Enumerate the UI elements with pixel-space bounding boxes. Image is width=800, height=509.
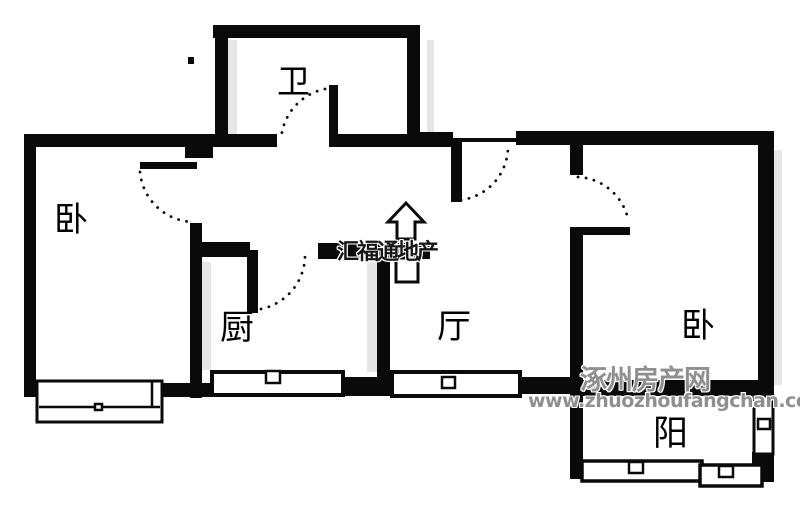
wall bbox=[516, 131, 774, 145]
wall bbox=[215, 25, 228, 147]
entrance-arrow-icon bbox=[388, 203, 424, 239]
wall bbox=[453, 138, 517, 142]
wall-shadow bbox=[367, 262, 377, 372]
watermark-agency-name: 汇福通地产 bbox=[337, 242, 437, 264]
room-label-bedroom-left: 卧 bbox=[54, 203, 88, 237]
door-leaf bbox=[572, 227, 630, 235]
wall bbox=[162, 383, 212, 397]
window-marker bbox=[95, 404, 102, 410]
room-label-living-room: 厅 bbox=[437, 310, 471, 344]
wall bbox=[213, 134, 277, 147]
wall-shadow bbox=[202, 262, 211, 370]
room-label-balcony: 阳 bbox=[653, 417, 688, 452]
wall bbox=[570, 145, 583, 175]
door-leaf bbox=[247, 250, 258, 313]
wall bbox=[420, 132, 453, 147]
wall bbox=[202, 242, 250, 257]
wall bbox=[185, 134, 213, 158]
window-marker bbox=[266, 371, 280, 383]
wall bbox=[337, 134, 420, 147]
wall bbox=[407, 25, 420, 147]
door-leaf bbox=[140, 162, 197, 169]
wall bbox=[188, 57, 194, 64]
window-marker bbox=[758, 419, 770, 429]
door-swing-arc bbox=[140, 172, 194, 222]
wall-shadow bbox=[228, 40, 237, 135]
door-swing-arc bbox=[461, 147, 508, 200]
wall bbox=[340, 377, 392, 396]
door-swing-arc bbox=[578, 177, 628, 219]
door-leaf bbox=[329, 85, 338, 147]
room-label-kitchen: 厨 bbox=[220, 311, 254, 345]
window-marker bbox=[629, 462, 643, 473]
wall-shadow bbox=[427, 40, 434, 132]
room-label-bathroom: 卫 bbox=[277, 65, 310, 98]
window-marker bbox=[719, 466, 733, 477]
floor-plan: 卧 卫 厨 厅 卧 阳 汇福通地产 涿州房产网 www.zhuozhoufang… bbox=[0, 0, 800, 509]
window bbox=[37, 381, 162, 422]
wall-shadow bbox=[774, 150, 782, 385]
wall bbox=[758, 131, 774, 393]
wall bbox=[24, 134, 36, 397]
window-marker bbox=[442, 377, 455, 388]
wall bbox=[377, 258, 390, 385]
watermark-site-url: www.zhuozhoufangchan.com bbox=[528, 392, 800, 411]
door-swing-arc bbox=[253, 256, 305, 310]
room-label-bedroom-right: 卧 bbox=[681, 309, 715, 343]
wall bbox=[24, 134, 185, 147]
wall bbox=[190, 223, 202, 398]
wall bbox=[213, 25, 420, 38]
door-leaf bbox=[451, 138, 462, 202]
